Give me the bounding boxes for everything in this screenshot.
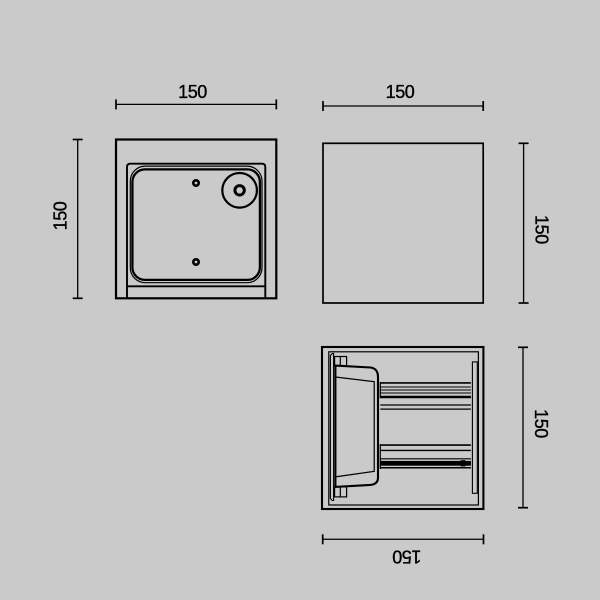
svg-text:150: 150 xyxy=(532,215,552,244)
svg-text:150: 150 xyxy=(50,201,70,230)
svg-text:150: 150 xyxy=(178,82,207,102)
svg-text:150: 150 xyxy=(392,547,421,567)
svg-text:150: 150 xyxy=(386,82,415,102)
svg-text:150: 150 xyxy=(531,409,551,438)
